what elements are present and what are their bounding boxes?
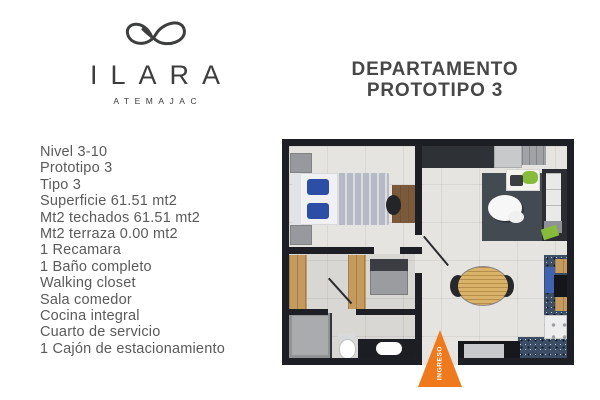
spec-item: Cocina integral xyxy=(40,308,225,324)
washer-top xyxy=(370,259,408,271)
wall-top xyxy=(282,139,574,146)
wall-bottom-right xyxy=(458,358,574,365)
entrance-marker: INGRESO xyxy=(418,330,462,387)
bed-duvet xyxy=(337,173,389,225)
spec-item: Mt2 techados 61.51 mt2 xyxy=(40,210,225,226)
spec-item: Prototipo 3 xyxy=(40,160,225,176)
entrance-label: INGRESO xyxy=(437,346,444,380)
nightstand-bottom xyxy=(290,225,312,245)
spec-item: Nivel 3-10 xyxy=(40,144,225,160)
brand-block: ILARA ATEMAJAC xyxy=(55,12,255,106)
stove xyxy=(544,315,567,339)
flyer-page: { "brand": { "name": "ILARA", "subtitle"… xyxy=(0,0,600,400)
spec-item: Cuarto de servicio xyxy=(40,324,225,340)
wall-bath-a xyxy=(282,309,328,315)
shower xyxy=(289,313,331,358)
spec-item: Tipo 3 xyxy=(40,177,225,193)
spec-list: Nivel 3-10 Prototipo 3 Tipo 3 Superficie… xyxy=(40,144,225,357)
washer xyxy=(370,259,408,295)
wall-bottom-left xyxy=(282,358,422,365)
tv-cabinet xyxy=(522,146,546,165)
vanity-sink xyxy=(376,342,402,355)
bed-headboard xyxy=(293,173,301,225)
entry-closet xyxy=(422,146,496,168)
bed xyxy=(293,173,389,225)
bed-pillow-blue-2 xyxy=(307,203,329,219)
kitchen-cabinet-2 xyxy=(555,297,567,311)
title-line-2: PROTOTIPO 3 xyxy=(315,80,555,101)
bed-pillow-blue-1 xyxy=(307,179,329,195)
sofa-cushions xyxy=(546,173,561,221)
toilet-bowl xyxy=(339,339,356,359)
kitchen-dark-cabinet xyxy=(554,275,567,297)
wall-right xyxy=(567,139,574,365)
side-table-plant xyxy=(522,171,538,184)
wall-bedroom-a xyxy=(282,247,374,254)
brand-name: ILARA xyxy=(55,60,255,91)
desk-chair xyxy=(386,195,401,215)
closet-door-panel xyxy=(494,143,522,168)
shower-glass xyxy=(330,313,332,358)
page-title: DEPARTAMENTO PROTOTIPO 3 xyxy=(315,59,555,101)
spec-item: Sala comedor xyxy=(40,292,225,308)
infinity-logo-icon xyxy=(116,12,194,54)
brand-subtitle: ATEMAJAC xyxy=(55,96,255,106)
kitchen-cabinet-1 xyxy=(555,259,567,273)
spec-item: 1 Recamara xyxy=(40,242,225,258)
coffee-table-small xyxy=(508,211,524,223)
spec-item: Mt2 terraza 0.00 mt2 xyxy=(40,226,225,242)
wall-bath-b xyxy=(356,309,422,315)
spec-item: Superficie 61.51 mt2 xyxy=(40,193,225,209)
title-line-1: DEPARTAMENTO xyxy=(315,59,555,80)
spec-item: Walking closet xyxy=(40,275,225,291)
bedroom-door-leaf xyxy=(423,236,449,266)
sofa xyxy=(542,169,568,241)
spec-item: 1 Baño completo xyxy=(40,259,225,275)
wall-divider-top xyxy=(415,139,422,235)
wardrobe-left xyxy=(289,255,307,309)
dining-table xyxy=(458,267,508,305)
side-table-box xyxy=(510,175,523,186)
spec-item: 1 Cajón de estacionamiento xyxy=(40,341,225,357)
nightstand-top xyxy=(290,153,312,173)
wall-bedroom-b xyxy=(400,247,422,254)
